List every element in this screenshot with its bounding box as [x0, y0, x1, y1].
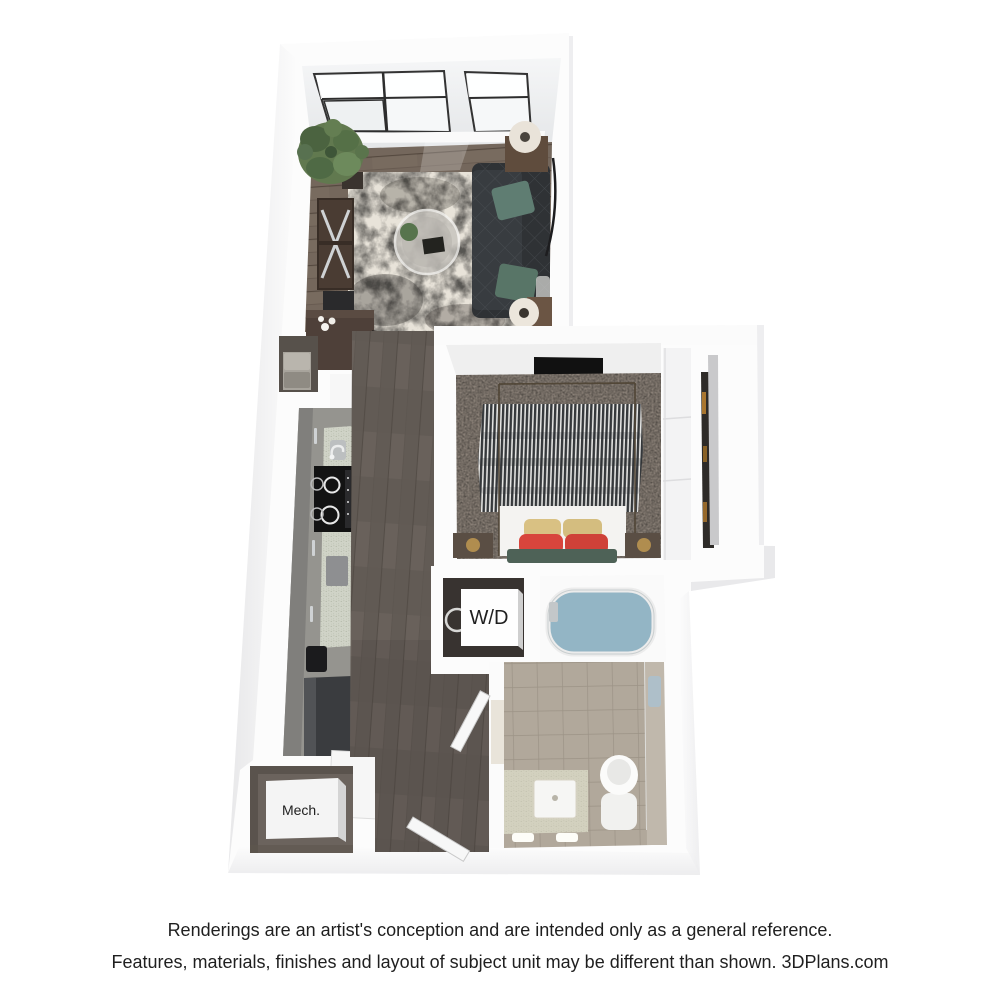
svg-text:W/D: W/D: [470, 607, 509, 629]
svg-text:Features, materials, finishes: Features, materials, finishes and layout…: [111, 952, 888, 972]
svg-text:Renderings are an artist's con: Renderings are an artist's conception an…: [168, 920, 833, 940]
svg-text:Mech.: Mech.: [282, 802, 320, 818]
